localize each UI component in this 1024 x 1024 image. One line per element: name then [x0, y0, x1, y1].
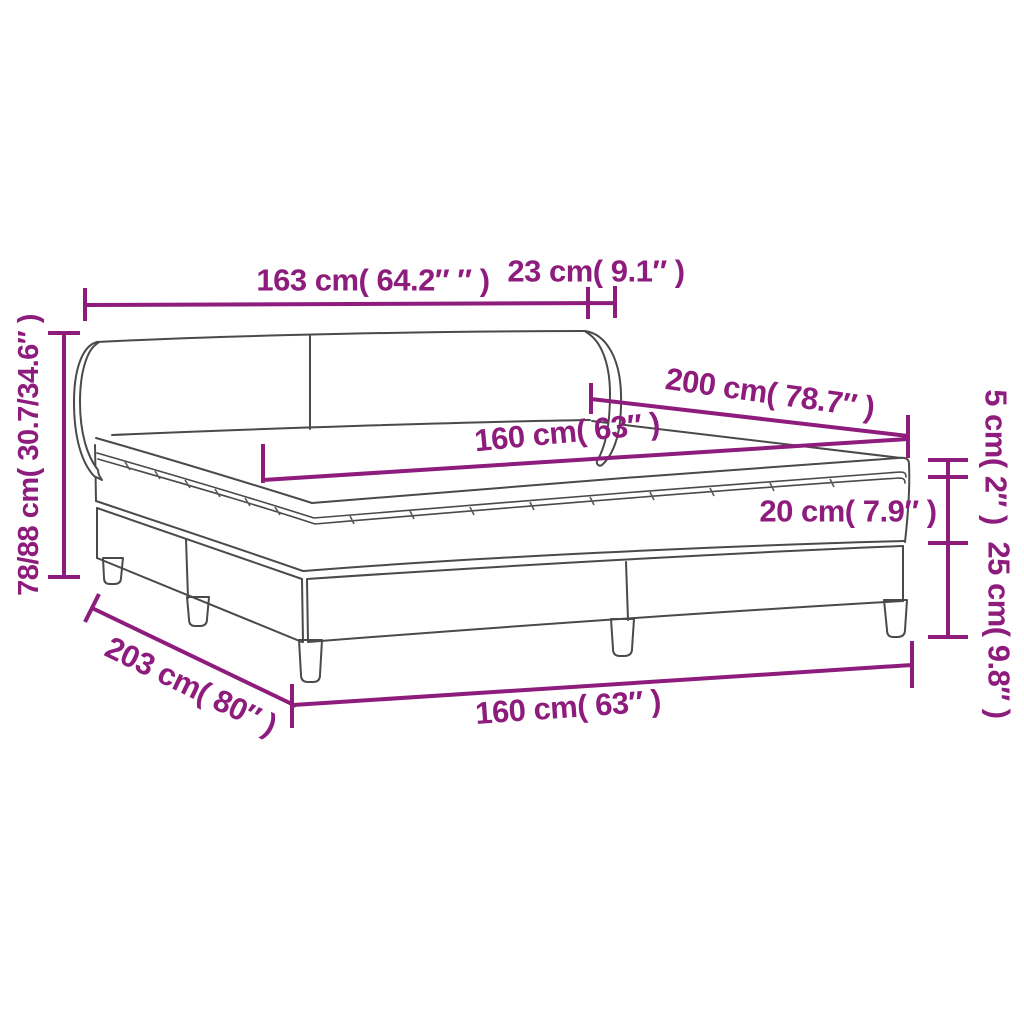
dim-headboard-width: 163 cm( 64.2″ ″ ) 23 cm( 9.1″ ) [85, 254, 685, 322]
base-corner-edge [302, 579, 308, 642]
leg [611, 619, 634, 656]
base-left-seam [186, 539, 188, 598]
dim-label-bed-length: 200 cm( 78.7″ ) [663, 361, 877, 425]
dim-label-topper-height: 5 cm( 2″ ) [979, 389, 1014, 525]
dim-height-range: 78/88 cm( 30.7/34.6″ ) [13, 314, 80, 596]
dim-label-mattress-width: 160 cm( 63″ ) [473, 406, 661, 459]
dim-label-height-range: 78/88 cm( 30.7/34.6″ ) [13, 314, 45, 596]
dim-label-headboard-width: 163 cm( 64.2″ ″ ) [256, 263, 489, 298]
headboard-top-edge [97, 331, 585, 342]
dim-mattress-width: 160 cm( 63″ ) [263, 406, 908, 483]
leg [187, 597, 209, 626]
product-dimension-diagram: 163 cm( 64.2″ ″ ) 23 cm( 9.1″ ) 78/88 cm… [0, 0, 1024, 1024]
base-top-foot-edge [307, 546, 903, 579]
base-bottom-left-edge [97, 558, 302, 642]
base-top-left-edge [97, 508, 302, 579]
mattress-top-near-edge [96, 438, 312, 503]
dim-label-headboard-depth: 23 cm( 9.1″ ) [507, 254, 684, 289]
dim-label-base-height: 25 cm( 9.8″ ) [982, 541, 1017, 718]
leg [884, 600, 907, 637]
base-foot-seam [626, 562, 628, 620]
bed-legs [103, 558, 907, 682]
base-bottom-foot-edge [308, 601, 903, 642]
headboard [74, 331, 621, 480]
bed-diagram-canvas: 163 cm( 64.2″ ″ ) 23 cm( 9.1″ ) 78/88 cm… [0, 0, 1024, 1024]
dim-label-mattress-height: 20 cm( 7.9″ ) [759, 494, 936, 529]
dim-base-width: 160 cm( 63″ ) [293, 641, 912, 731]
leg [299, 640, 322, 682]
